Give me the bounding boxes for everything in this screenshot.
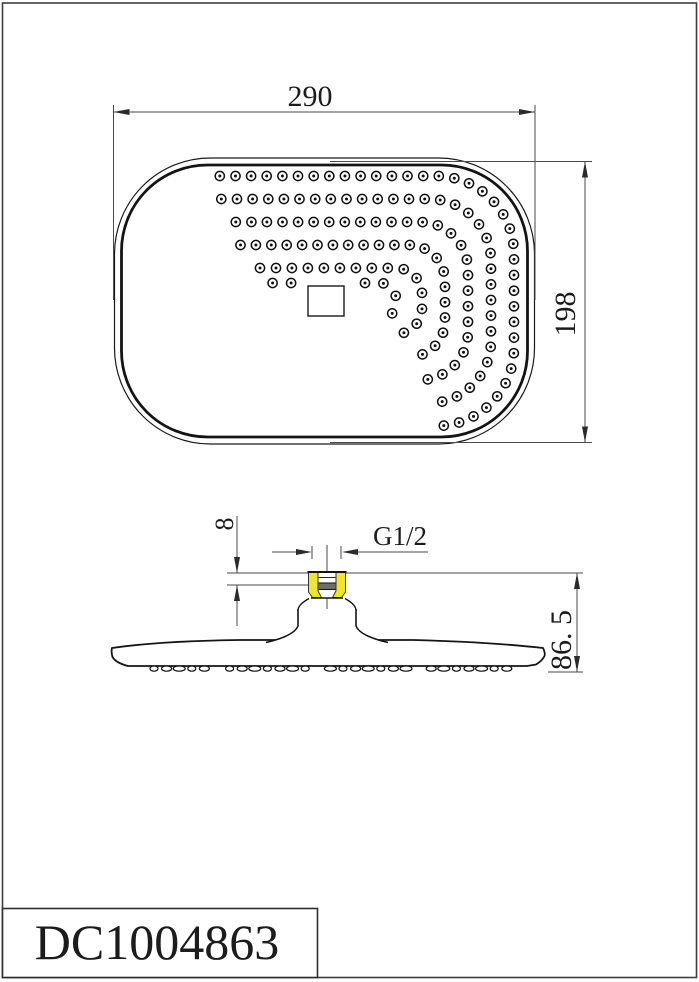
- nozzle-dot-center: [441, 373, 444, 376]
- nozzle-dot-center: [301, 244, 304, 247]
- nozzle-dot-center: [406, 175, 409, 178]
- sheet-border: [3, 3, 697, 978]
- nozzle-dot-center: [454, 203, 457, 206]
- nozzle-dot-center: [259, 267, 262, 270]
- nozzle-dot-center: [490, 314, 493, 317]
- nozzle-dot-center: [422, 175, 425, 178]
- part-number: DC1004863: [35, 914, 279, 970]
- dimension-arrowhead: [234, 557, 240, 573]
- nozzle-dot-center: [478, 223, 481, 226]
- nozzle-dot-center: [415, 322, 418, 325]
- nozzle-dot-center: [375, 175, 378, 178]
- dim-text-g12: G1/2: [373, 521, 427, 551]
- nozzle-dot-center: [328, 175, 331, 178]
- nozzle-dot-center: [290, 267, 293, 270]
- nozzle-dot-center: [493, 200, 496, 203]
- bottom-nozzle-bumps: [150, 666, 512, 671]
- nozzle-dot-center: [338, 267, 341, 270]
- nozzle-dot-center: [402, 331, 405, 334]
- nozzle-dot-center: [376, 198, 379, 201]
- nozzle-dot-center: [265, 175, 268, 178]
- nozzle-dot-center: [485, 237, 488, 240]
- nozzle-dot-center: [496, 395, 499, 398]
- nozzle-dot-center: [220, 198, 223, 201]
- nozzle-dot-center: [312, 221, 315, 224]
- nozzle-dot-center: [392, 198, 395, 201]
- nozzle-dot-center: [513, 258, 516, 261]
- bottom-nozzle-bump: [173, 666, 185, 671]
- nozzle-dot-center: [467, 274, 470, 277]
- nozzle-dot-center: [455, 395, 458, 398]
- bottom-nozzle-bump: [263, 666, 271, 671]
- nozzle-dot-center: [442, 331, 445, 334]
- nozzle-dot-center: [394, 294, 397, 297]
- nozzle-dot-center: [281, 221, 284, 224]
- nozzle-dot-center: [442, 270, 445, 273]
- nozzle-dot-center: [312, 175, 315, 178]
- nozzle-dot-center: [450, 232, 453, 235]
- nozzle-dot-center: [354, 267, 357, 270]
- nozzle-dot-center: [250, 221, 253, 224]
- nozzle-dot-center: [513, 289, 516, 292]
- bottom-nozzle-bump: [377, 666, 385, 671]
- nozzle-dot-center: [462, 351, 465, 354]
- bottom-nozzle-bump: [301, 666, 309, 671]
- dimension-arrowhead: [519, 109, 535, 115]
- nozzle-dot-center: [441, 400, 444, 403]
- nozzle-dot-center: [267, 198, 270, 201]
- collar-right-edge: [345, 599, 356, 610]
- nozzle-dot-center: [359, 221, 362, 224]
- nozzle-dot-center: [502, 213, 505, 216]
- nozzle-dot-center: [236, 198, 239, 201]
- nozzle-dot-center: [306, 267, 309, 270]
- nozzle-dot-center: [382, 282, 385, 285]
- nozzle-dot-center: [466, 336, 469, 339]
- nozzle-dot-center: [468, 182, 471, 185]
- nozzle-dot-center: [512, 352, 515, 355]
- nozzle-dot-center: [421, 353, 424, 356]
- nozzle-dot-center: [281, 175, 284, 178]
- bottom-nozzle-bump: [476, 666, 488, 671]
- nozzle-dot-center: [444, 285, 447, 288]
- nozzle-dot-center: [370, 267, 373, 270]
- nozzle-dot-center: [513, 274, 516, 277]
- nozzle-dot-center: [439, 199, 442, 202]
- bottom-nozzle-bump: [199, 666, 209, 671]
- nozzle-dot-center: [489, 345, 492, 348]
- nozzle-dot-center: [489, 252, 492, 255]
- side-view: [112, 545, 583, 671]
- nozzle-dot-center: [423, 247, 426, 250]
- dimension-arrowhead: [342, 549, 358, 555]
- nozzle-dot-center: [453, 364, 456, 367]
- nozzle-dot-center: [270, 244, 273, 247]
- nozzle-dot-center: [347, 244, 350, 247]
- nozzle-dot-center: [250, 175, 253, 178]
- nozzle-dot-center: [490, 330, 493, 333]
- bottom-nozzle-bump: [362, 666, 374, 671]
- nozzle-dot-center: [479, 375, 482, 378]
- nozzle-dot-center: [391, 312, 394, 315]
- bottom-nozzle-bump: [249, 666, 261, 671]
- nozzle-dot-center: [472, 415, 475, 418]
- nozzle-dot-center: [314, 198, 317, 201]
- nozzle-dot-center: [513, 336, 516, 339]
- nozzle-dot-center: [512, 242, 515, 245]
- nozzle-dot-center: [402, 268, 405, 271]
- nozzle-dot-center: [271, 282, 274, 285]
- nozzle-dot-center: [444, 316, 447, 319]
- dimension-arrowhead: [574, 573, 580, 589]
- nozzle-dot-center: [254, 244, 257, 247]
- drawing-sheet: 290 198 8 G1/2 86. 5 DC1004863: [0, 0, 699, 982]
- bottom-nozzle-bump: [351, 666, 361, 671]
- nozzle-dot-center: [468, 386, 471, 389]
- bottom-nozzle-bump: [400, 666, 412, 671]
- dimension-arrowhead: [582, 427, 588, 443]
- center-square-opening: [308, 286, 344, 316]
- nozzle-dot-center: [393, 244, 396, 247]
- nozzle-dot-center: [421, 291, 424, 294]
- nozzle-dot-center: [390, 221, 393, 224]
- nozzle-dot-center: [421, 221, 424, 224]
- nozzle-dot-center: [458, 421, 461, 424]
- nozzle-dot-center: [290, 282, 293, 285]
- dimension-arrowhead: [234, 585, 240, 601]
- nozzle-dot-center: [378, 244, 381, 247]
- nozzle-dot-center: [423, 198, 426, 201]
- nozzle-dot-center: [467, 289, 470, 292]
- nozzle-dot-center: [218, 175, 221, 178]
- nozzle-dot-center: [322, 267, 325, 270]
- nozzle-dot-center: [490, 267, 493, 270]
- bottom-nozzle-bump: [188, 666, 196, 671]
- nozzle-dot-center: [513, 305, 516, 308]
- nozzle-dot-center: [437, 175, 440, 178]
- bottom-nozzle-bump: [324, 666, 336, 671]
- dimension-arrowhead: [114, 109, 130, 115]
- nozzle-dot-center: [481, 190, 484, 193]
- nozzle-dot-center: [421, 307, 424, 310]
- nozzle-dot-center: [285, 244, 288, 247]
- title-block: DC1004863: [3, 909, 318, 978]
- nozzle-dot-center: [406, 221, 409, 224]
- top-view: [115, 158, 535, 444]
- nozzle-dot-center: [415, 277, 418, 280]
- nozzle-dot-center: [282, 198, 285, 201]
- nozzle-dot-center: [434, 344, 437, 347]
- dim-text-86: 86. 5: [545, 610, 578, 670]
- nozzle-dot-center: [408, 244, 411, 247]
- nozzle-dot-center: [508, 227, 511, 230]
- nozzle-dot-center: [297, 221, 300, 224]
- collar-left-edge: [298, 599, 309, 610]
- gasket-band: [316, 583, 339, 590]
- nozzle-dot-center: [239, 244, 242, 247]
- nozzle-dot-center: [390, 175, 393, 178]
- bottom-nozzle-bump: [287, 666, 299, 671]
- nozzle-dot-center: [486, 361, 489, 364]
- nozzle-dot-center: [234, 221, 237, 224]
- nozzle-dot-center: [329, 198, 332, 201]
- nozzle-dot-center: [386, 267, 389, 270]
- nozzle-dot-center: [408, 198, 411, 201]
- nozzle-dot-center: [442, 424, 445, 427]
- nozzle-dot-center: [513, 320, 516, 323]
- nozzle-dot-center: [298, 198, 301, 201]
- nozzle-dot-center: [426, 378, 429, 381]
- bottom-nozzle-bump: [226, 666, 234, 671]
- dim-text-198: 198: [549, 292, 582, 337]
- nozzle-dot-center: [435, 257, 438, 260]
- bottom-nozzle-bump: [502, 666, 512, 671]
- nozzle-dot-center: [467, 212, 470, 215]
- nozzle-dot-center: [343, 175, 346, 178]
- bottom-nozzle-bump: [162, 666, 172, 671]
- nozzle-dot-center: [343, 221, 346, 224]
- nozzle-dot-center: [436, 224, 439, 227]
- bottom-nozzle-bump: [490, 666, 498, 671]
- bottom-nozzle-bump: [452, 666, 460, 671]
- bottom-nozzle-bump: [464, 666, 474, 671]
- nozzle-dot-center: [345, 198, 348, 201]
- nozzle-dot-center: [297, 175, 300, 178]
- nozzle-dot-center: [490, 299, 493, 302]
- nozzle-dot-center: [485, 406, 488, 409]
- nozzle-dot-center: [359, 175, 362, 178]
- dim-text-8: 8: [210, 518, 239, 531]
- nozzle-dot-center: [331, 244, 334, 247]
- nozzle-dot-center: [364, 282, 367, 285]
- neck-fill: [266, 609, 388, 647]
- dim-text-290: 290: [288, 80, 333, 113]
- nozzle-dot-center: [490, 283, 493, 286]
- nozzle-dot-center: [275, 267, 278, 270]
- nozzle-dot-center: [234, 175, 237, 178]
- cad-drawing-canvas: 290 198 8 G1/2 86. 5 DC1004863: [0, 0, 699, 982]
- bottom-nozzle-bump: [237, 666, 247, 671]
- thread-connector: [308, 572, 347, 598]
- nozzle-dot-center: [265, 221, 268, 224]
- bottom-nozzle-bump: [388, 666, 398, 671]
- dimension-arrowhead: [296, 549, 312, 555]
- nozzle-dot-center: [467, 320, 470, 323]
- nozzle-dot-center: [444, 301, 447, 304]
- nozzle-dot-center: [361, 198, 364, 201]
- nozzle-dot-center: [510, 367, 513, 370]
- nozzle-dot-center: [504, 382, 507, 385]
- nozzle-dot-center: [316, 244, 319, 247]
- bottom-nozzle-bump: [275, 666, 285, 671]
- dimension-arrowhead: [582, 162, 588, 178]
- nozzle-dot-center: [374, 221, 377, 224]
- nozzle-dot-center: [465, 258, 468, 261]
- nozzle-dot-center: [328, 221, 331, 224]
- nozzle-dot-center: [453, 177, 456, 180]
- bottom-nozzle-bump: [426, 666, 436, 671]
- nozzle-dot-center: [362, 244, 365, 247]
- nozzle-dot-center: [467, 305, 470, 308]
- nozzle-dot-center: [251, 198, 254, 201]
- bottom-nozzle-bump: [150, 666, 158, 671]
- bottom-nozzle-bump: [339, 666, 347, 671]
- nozzle-dot-center: [460, 244, 463, 247]
- bottom-nozzle-bump: [438, 666, 450, 671]
